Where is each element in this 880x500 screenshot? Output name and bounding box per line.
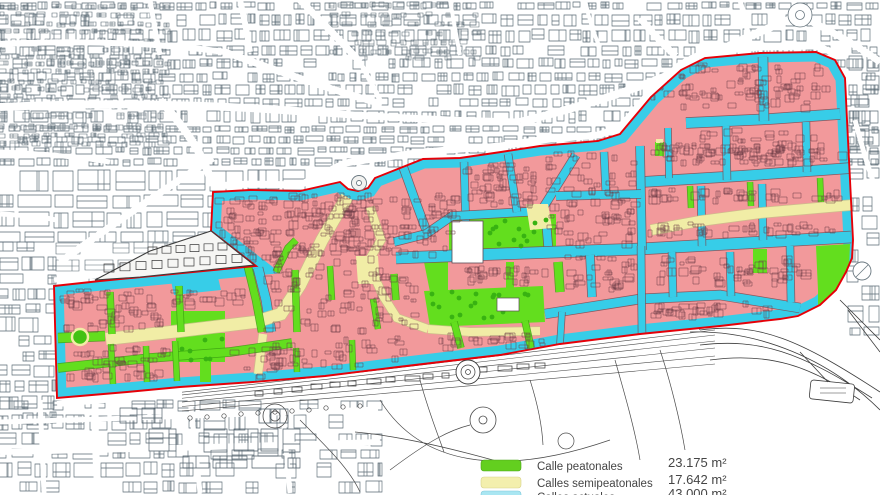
svg-text:Calles semipeatonales: Calles semipeatonales <box>537 478 653 490</box>
svg-text:43.000 m²: 43.000 m² <box>668 486 727 495</box>
svg-text:Calle peatonales: Calle peatonales <box>537 461 623 473</box>
svg-text:17.642 m²: 17.642 m² <box>668 472 727 487</box>
svg-text:23.175 m²: 23.175 m² <box>668 455 727 470</box>
